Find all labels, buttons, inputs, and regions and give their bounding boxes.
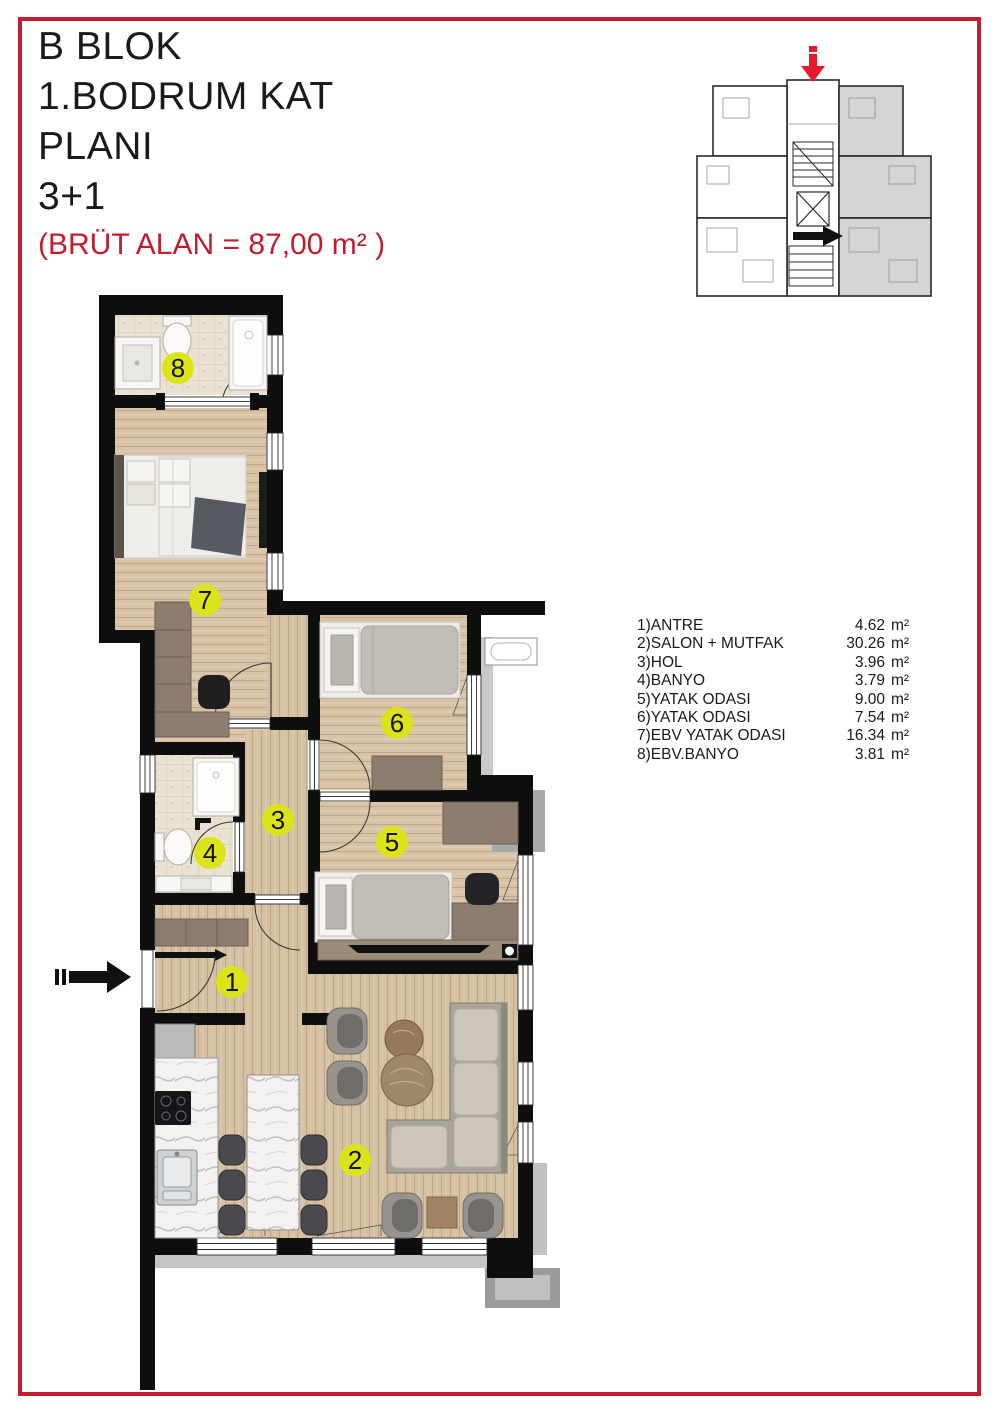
wardrobe-panel (259, 472, 267, 548)
room-badge-2: 2 (339, 1144, 371, 1176)
legend-row: 3)HOL 3.96 m² (637, 654, 919, 672)
shower-tray-4 (193, 758, 239, 816)
ac-unit (485, 638, 537, 665)
legend-room-unit: m² (885, 691, 919, 709)
legend-row: 4)BANYO 3.79 m² (637, 672, 919, 690)
cooktop (155, 1091, 191, 1125)
gross-area-note: (BRÜT ALAN = 87,00 m² ) (38, 226, 385, 264)
svg-text:8: 8 (171, 353, 185, 383)
legend-row: 2)SALON + MUTFAK 30.26 m² (637, 635, 919, 653)
legend-room-label: 8)EBV.BANYO (637, 746, 839, 764)
window-salon-south-3 (422, 1238, 487, 1255)
legend-room-area: 16.34 (839, 727, 885, 745)
legend-room-area: 9.00 (839, 691, 885, 709)
legend-row: 8)EBV.BANYO 3.81 m² (637, 746, 919, 764)
legend-room-unit: m² (885, 746, 919, 764)
svg-text:6: 6 (390, 708, 404, 738)
dining-table (247, 1075, 299, 1230)
svg-text:2: 2 (348, 1145, 362, 1175)
legend-room-area: 30.26 (839, 635, 885, 653)
legend-room-label: 6)YATAK ODASI (637, 709, 839, 727)
room-badge-1: 1 (216, 966, 248, 998)
legend-room-area: 7.54 (839, 709, 885, 727)
fridge (155, 1024, 195, 1058)
desk (155, 712, 229, 737)
room-badge-6: 6 (381, 707, 413, 739)
svg-text:7: 7 (198, 585, 212, 615)
shower-tray (229, 316, 267, 390)
legend-room-area: 4.62 (839, 617, 885, 635)
legend-row: 1)ANTRE 4.62 m² (637, 617, 919, 635)
legend-room-unit: m² (885, 617, 919, 635)
terrace-sill-band (155, 1255, 487, 1268)
window-salon-east-1 (518, 965, 533, 1010)
legend-room-unit: m² (885, 635, 919, 653)
title-block: B BLOK 1.BODRUM KAT PLANI 3+1 (BRÜT ALAN… (38, 22, 385, 264)
single-bed-5 (315, 872, 452, 942)
desk-chair (198, 675, 230, 709)
room-badge-7: 7 (189, 584, 221, 616)
legend-room-area: 3.79 (839, 672, 885, 690)
kitchen-counter (155, 1058, 218, 1238)
antre-furniture (155, 919, 248, 946)
window-ebv-yatak-1 (267, 433, 283, 470)
tv-console (318, 940, 518, 960)
room-legend: 1)ANTRE 4.62 m² 2)SALON + MUTFAK 30.26 m… (637, 617, 919, 764)
svg-text:1: 1 (225, 967, 239, 997)
dresser-6 (372, 756, 442, 790)
legend-room-unit: m² (885, 654, 919, 672)
single-bed-6 (320, 622, 460, 698)
wardrobe-5 (443, 802, 518, 844)
title-line-floor: 1.BODRUM KAT (38, 72, 385, 122)
entry-wardrobe (155, 919, 248, 946)
kitchen-sink (157, 1150, 197, 1205)
legend-room-label: 4)BANYO (637, 672, 839, 690)
entry-arrow (55, 961, 131, 993)
desk-5 (452, 903, 518, 942)
bathroom-sink (115, 337, 160, 389)
title-line-plan: PLANI (38, 122, 385, 172)
svg-text:3: 3 (271, 805, 285, 835)
title-line-block: B BLOK (38, 22, 385, 72)
legend-row: 5)YATAK ODASI 9.00 m² (637, 691, 919, 709)
key-plan-elevator (797, 192, 829, 226)
window-banyo (140, 755, 155, 793)
floorplan-page: B BLOK 1.BODRUM KAT PLANI 3+1 (BRÜT ALAN… (0, 0, 999, 1414)
legend-room-area: 3.96 (839, 654, 885, 672)
bathroom-sink-4 (156, 876, 232, 892)
window-ebv-yatak-2 (267, 553, 283, 590)
key-plan-entrance-arrow (801, 46, 825, 82)
desk-chair-5 (465, 873, 499, 905)
room-badge-3: 3 (262, 804, 294, 836)
room-badge-4: 4 (194, 837, 226, 869)
legend-room-unit: m² (885, 672, 919, 690)
legend-room-area: 3.81 (839, 746, 885, 764)
legend-row: 6)YATAK ODASI 7.54 m² (637, 709, 919, 727)
boiler-symbol (502, 944, 517, 958)
window-salon-east-2 (518, 1062, 533, 1105)
svg-text:5: 5 (385, 827, 399, 857)
legend-room-label: 5)YATAK ODASI (637, 691, 839, 709)
svg-text:4: 4 (203, 838, 217, 868)
legend-room-label: 7)EBV YATAK ODASI (637, 727, 839, 745)
legend-room-unit: m² (885, 727, 919, 745)
legend-room-label: 1)ANTRE (637, 617, 839, 635)
legend-room-unit: m² (885, 709, 919, 727)
legend-row: 7)EBV YATAK ODASI 16.34 m² (637, 727, 919, 745)
key-plan (683, 46, 945, 308)
room-badge-8: 8 (162, 352, 194, 384)
legend-room-label: 2)SALON + MUTFAK (637, 635, 839, 653)
title-line-type: 3+1 (38, 172, 385, 222)
legend-room-label: 3)HOL (637, 654, 839, 672)
room-badge-5: 5 (376, 826, 408, 858)
apartment-floor-plan: 1 2 3 4 5 6 7 (55, 285, 585, 1395)
side-table (427, 1197, 457, 1228)
toilet-4 (155, 829, 192, 865)
window-ebv-banyo (267, 335, 283, 375)
double-bed (115, 455, 246, 558)
